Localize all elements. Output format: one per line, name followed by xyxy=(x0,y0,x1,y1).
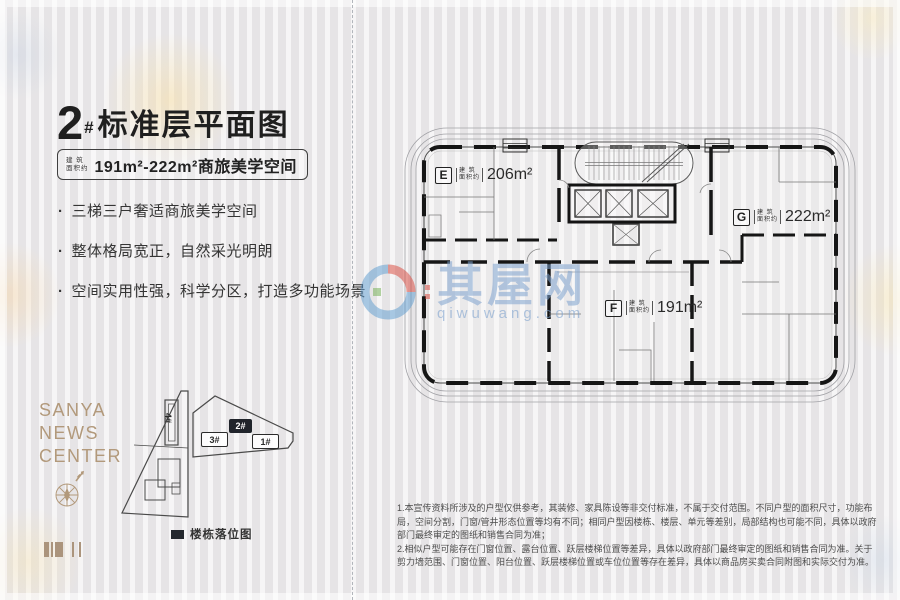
unit-letter: G xyxy=(733,209,750,226)
unit-area-prefix: 建 筑 面积约 xyxy=(754,210,781,224)
page-title: 2#标准层平面图 xyxy=(57,100,290,145)
compass-icon xyxy=(48,468,92,514)
unit-label-G: G 建 筑 面积约 222m² xyxy=(733,208,830,226)
selling-points: 三梯三户奢适商旅美学空间 整体格局宽正，自然采光明朗 空间实用性强，科学分区，打… xyxy=(58,200,366,320)
building-badge-2-active: 2# xyxy=(229,419,252,433)
project-logotype: SANYA NEWS CENTER xyxy=(39,399,122,468)
unit-area-value: 206m² xyxy=(487,166,532,184)
building-number: 2 xyxy=(57,96,83,149)
building-badge-4: 4# xyxy=(163,413,173,423)
bullet-item: 整体格局宽正，自然采光明朗 xyxy=(58,240,366,261)
unit-label-E: E 建 筑 面积约 206m² xyxy=(435,166,532,184)
area-range-badge: 建 筑 面积约 191m²-222m²商旅美学空间 xyxy=(57,149,308,180)
bullet-item: 空间实用性强，科学分区，打造多功能场景 xyxy=(58,280,366,301)
title-text: 标准层平面图 xyxy=(98,109,290,142)
site-plan-drawing xyxy=(112,383,312,545)
disclaimer-paragraph-2: 2.相似户型可能存在门窗位置、露台位置、跃层楼梯位置等差异，具体以政府部门最终审… xyxy=(397,543,880,570)
bullet-item: 三梯三户奢适商旅美学空间 xyxy=(58,200,366,221)
unit-area-prefix: 建 筑 面积约 xyxy=(456,168,483,182)
unit-area-prefix: 建 筑 面积约 xyxy=(626,301,653,315)
poster: 2#标准层平面图 建 筑 面积约 191m²-222m²商旅美学空间 三梯三户奢… xyxy=(0,0,900,600)
site-key-map: 3# 2# 1# 4# 楼栋落位图 xyxy=(112,383,312,545)
hash-mark: # xyxy=(84,118,93,137)
area-range-text: 191m²-222m²商旅美学空间 xyxy=(95,153,297,177)
area-prefix: 建 筑 面积约 xyxy=(66,157,89,172)
barcode-decoration xyxy=(44,542,81,557)
building-badge-1: 1# xyxy=(252,434,279,449)
site-map-legend: 楼栋落位图 xyxy=(171,526,253,542)
unit-letter: E xyxy=(435,167,452,184)
unit-letter: F xyxy=(605,300,622,317)
unit-area-value: 191m² xyxy=(657,299,702,317)
disclaimer: 1.本宣传资料所涉及的户型仅供参考，其装修、家具陈设等非交付标准，不属于交付范围… xyxy=(397,502,880,570)
unit-area-value: 222m² xyxy=(785,208,830,226)
floor-plan-drawing xyxy=(399,122,861,408)
legend-square-icon xyxy=(171,530,184,539)
unit-label-F: F 建 筑 面积约 191m² xyxy=(605,299,702,317)
floor-plan: E 建 筑 面积约 206m² G 建 筑 面积约 222m² F 建 筑 面积… xyxy=(399,122,861,408)
disclaimer-paragraph-1: 1.本宣传资料所涉及的户型仅供参考，其装修、家具陈设等非交付标准，不属于交付范围… xyxy=(397,502,880,543)
building-badge-3: 3# xyxy=(201,432,228,447)
